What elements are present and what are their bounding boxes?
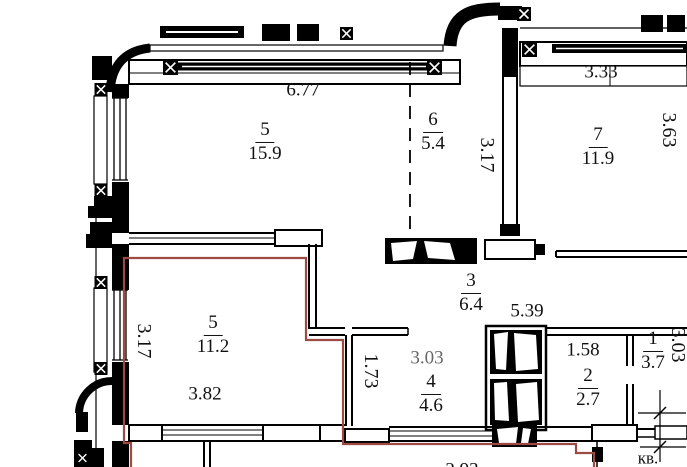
- room-label-4: 4 4.6: [419, 372, 443, 416]
- dim-room4-width: 3.03: [410, 349, 443, 368]
- dim-room7-width: 3.33: [584, 63, 617, 82]
- room-area: 11.2: [197, 336, 230, 358]
- room-label-3: 3 6.4: [459, 271, 483, 315]
- door-arc: [76, 381, 112, 432]
- floor-plan: 6.77 5 15.9 6 5.4 3.17 3.33 7 11.9 3.63 …: [0, 0, 687, 467]
- room-area: 6.4: [459, 294, 483, 316]
- room-label-2: 2 2.7: [576, 366, 600, 410]
- dim-bottom-width: 2.93: [445, 461, 478, 467]
- dim-top-width: 6.77: [286, 81, 319, 100]
- room-number: 1: [643, 329, 663, 352]
- left-wall: [74, 83, 129, 467]
- room-area: 4.6: [419, 395, 443, 417]
- dim-room1-height: 3.03: [668, 328, 687, 363]
- dim-room2-width: 1.58: [566, 341, 599, 360]
- vent-shaft-column: [486, 326, 546, 430]
- dim-room7-height: 3.63: [659, 113, 679, 148]
- room-number: 4: [421, 372, 441, 395]
- partition-walls: [129, 28, 687, 426]
- bottom-wall: [129, 425, 687, 467]
- vent-shaft-center: [385, 238, 545, 264]
- dim-room6-height: 3.17: [477, 138, 497, 173]
- room-label-5-bottom: 5 11.2: [197, 313, 230, 357]
- room-area: 15.9: [248, 143, 281, 165]
- room-area: 3.7: [641, 352, 665, 374]
- room-number: 3: [461, 271, 481, 294]
- dim-room5-bottom-width: 3.82: [188, 385, 221, 404]
- room-label-7: 7 11.9: [582, 125, 615, 169]
- room-area: 11.9: [582, 148, 615, 170]
- apartment-label: кв.: [638, 450, 659, 467]
- dim-room5-bottom-height: 3.17: [134, 324, 154, 359]
- room-number: 7: [588, 125, 608, 148]
- room-label-1: 1 3.7: [641, 329, 665, 373]
- room-label-5-top: 5 15.9: [248, 120, 281, 164]
- room-number: 2: [578, 366, 598, 389]
- room-area: 5.4: [421, 133, 445, 155]
- room-area: 2.7: [576, 389, 600, 411]
- room-number: 5: [255, 120, 275, 143]
- room-label-6: 6 5.4: [421, 110, 445, 154]
- dim-room4-entry: 1.73: [361, 354, 381, 389]
- room-number: 6: [423, 110, 443, 133]
- room-number: 5: [203, 313, 223, 336]
- dim-room3-width: 5.39: [510, 302, 543, 321]
